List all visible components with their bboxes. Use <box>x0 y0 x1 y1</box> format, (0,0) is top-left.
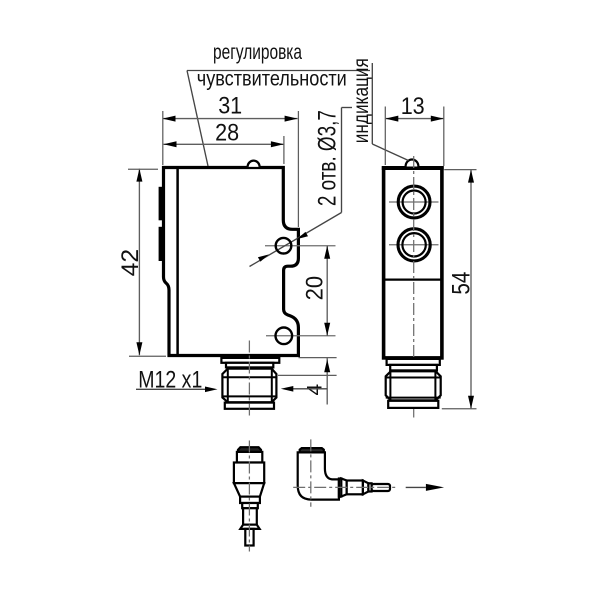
svg-text:13: 13 <box>401 93 425 120</box>
svg-text:2 отв. Ø3,7: 2 отв. Ø3,7 <box>314 110 342 206</box>
svg-text:31: 31 <box>218 93 242 120</box>
svg-text:20: 20 <box>302 276 329 301</box>
svg-text:4: 4 <box>304 384 327 396</box>
svg-text:регулировка: регулировка <box>213 40 302 64</box>
svg-text:28: 28 <box>215 120 239 147</box>
svg-text:индикация: индикация <box>349 58 373 143</box>
